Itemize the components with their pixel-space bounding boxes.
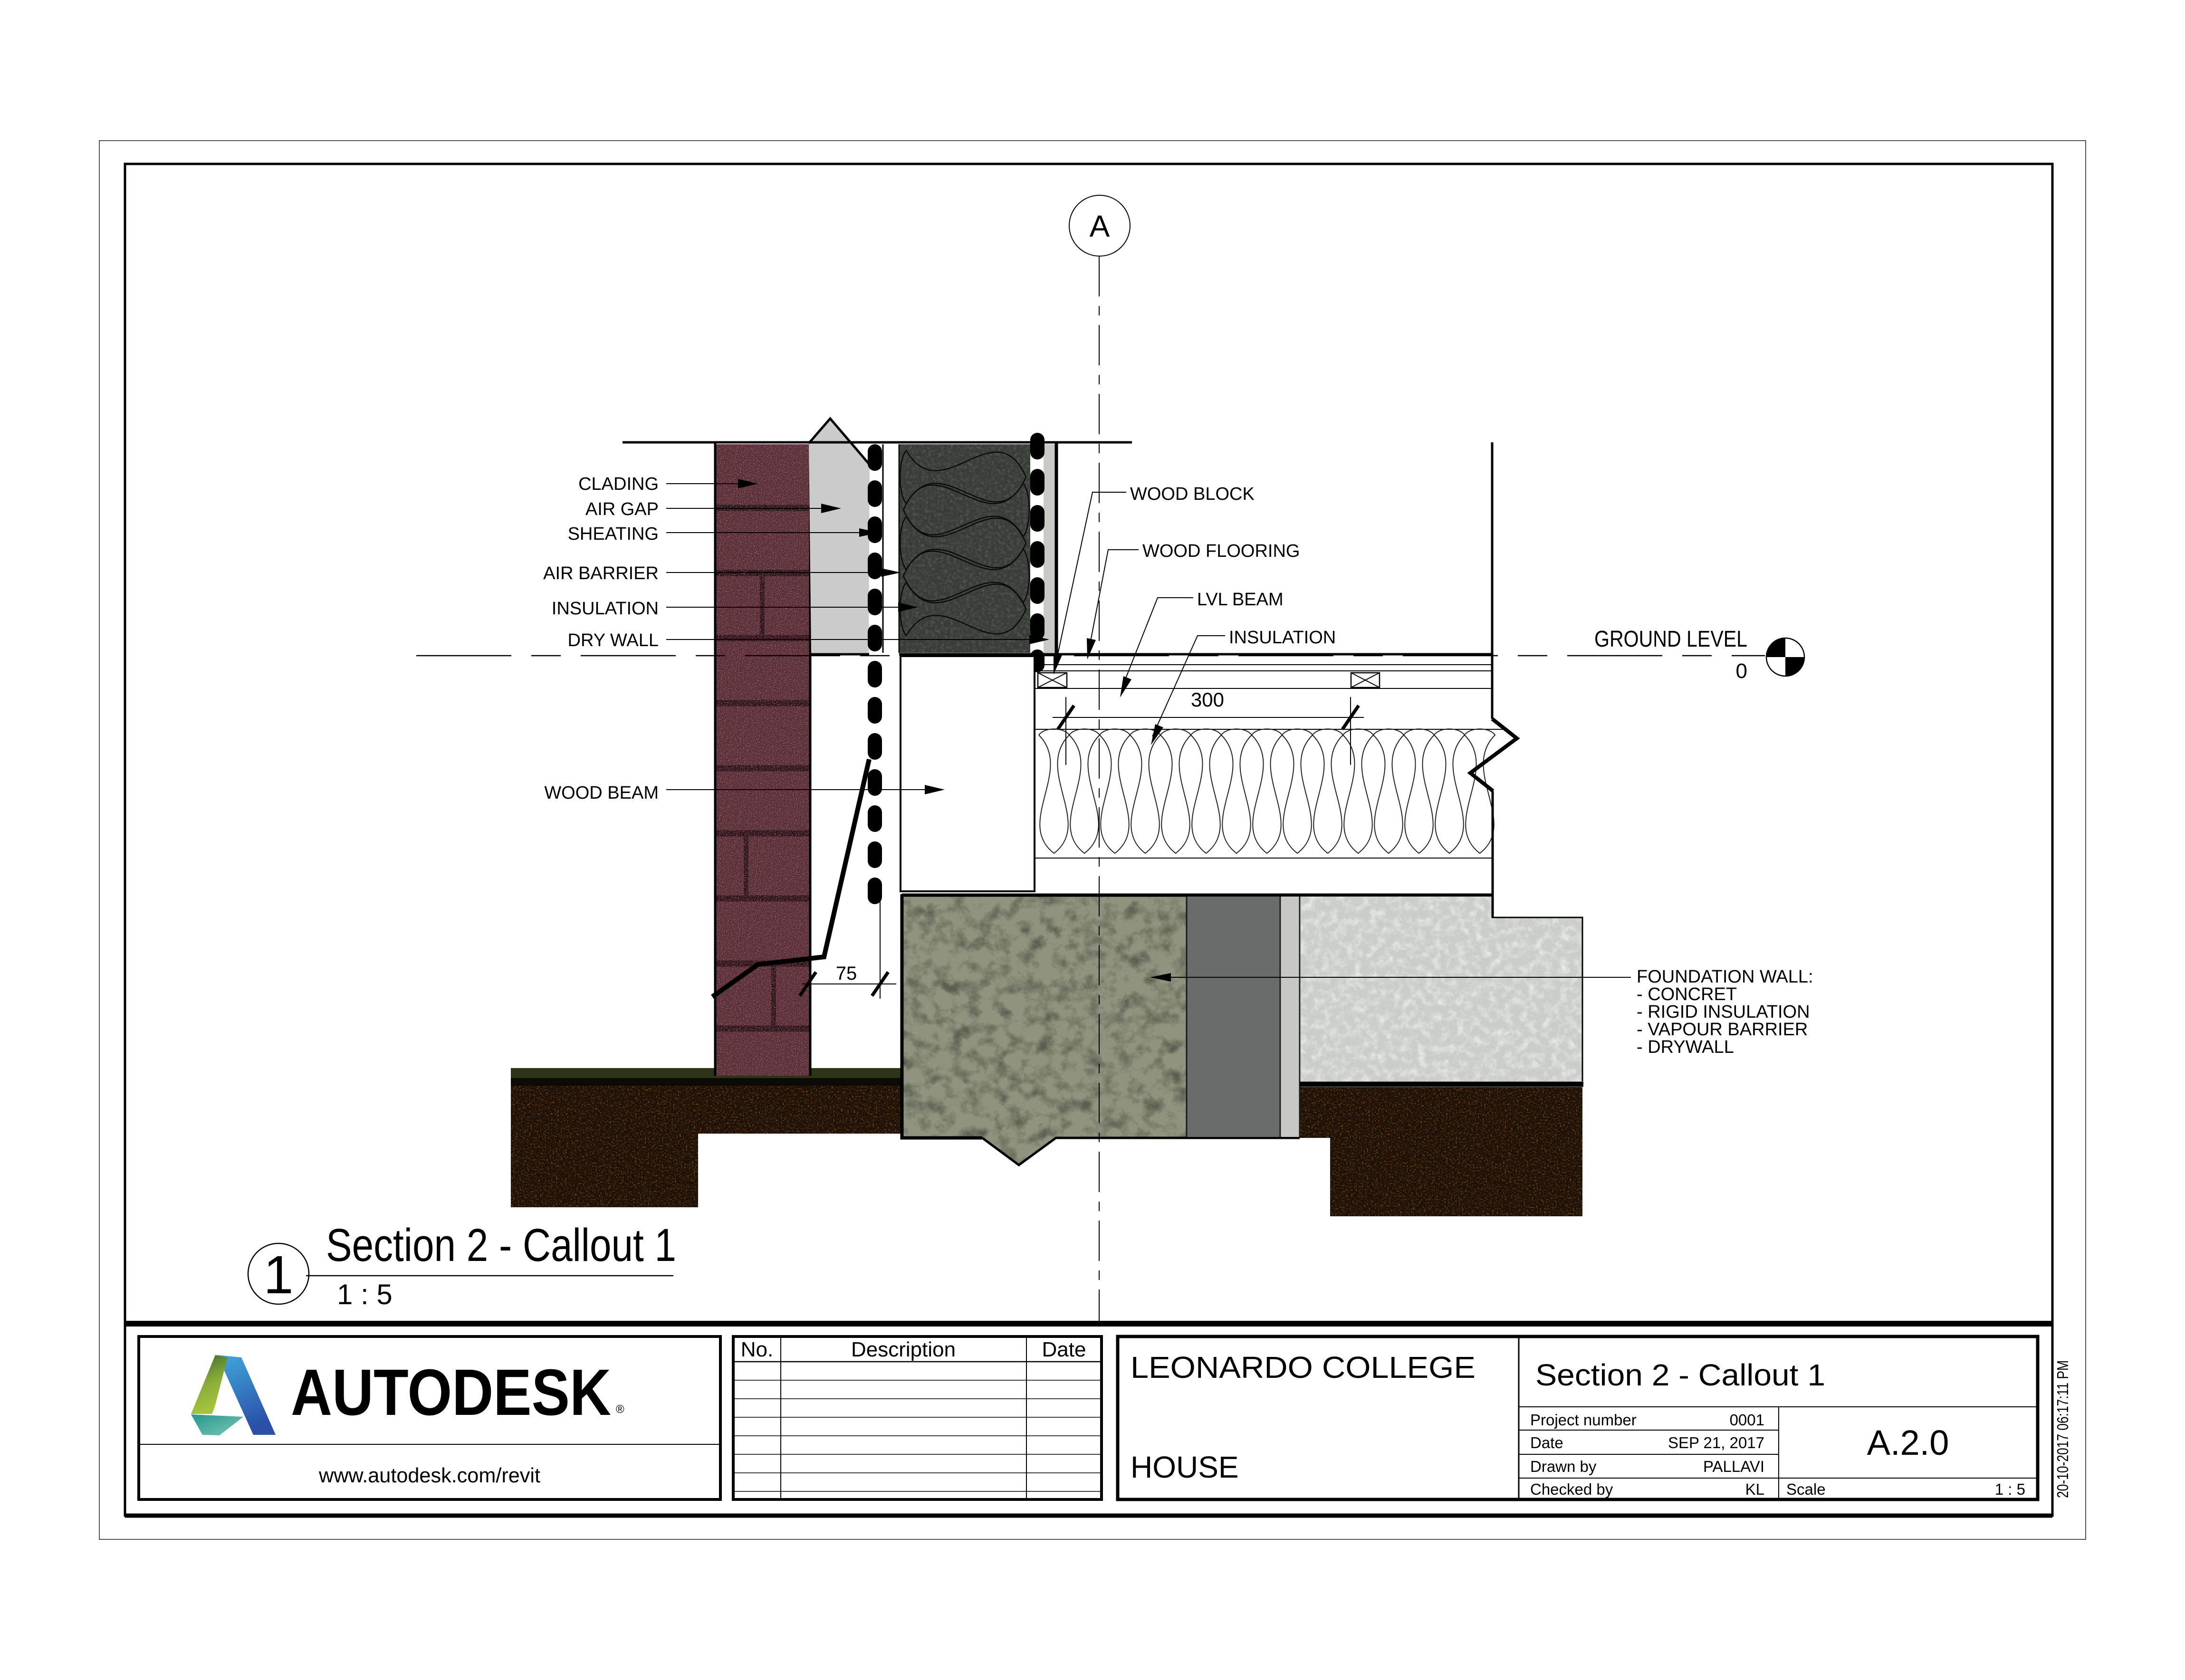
svg-text:- RIGID INSULATION: - RIGID INSULATION bbox=[1637, 1002, 1810, 1022]
svg-text:®: ® bbox=[616, 1403, 624, 1416]
svg-text:A: A bbox=[1090, 209, 1110, 243]
svg-text:1: 1 bbox=[264, 1245, 294, 1305]
svg-text:Description: Description bbox=[851, 1338, 956, 1361]
svg-text:WOOD BLOCK: WOOD BLOCK bbox=[1130, 484, 1255, 504]
svg-text:0: 0 bbox=[1736, 659, 1747, 683]
svg-text:HOUSE: HOUSE bbox=[1131, 1450, 1239, 1484]
svg-text:No.: No. bbox=[741, 1338, 773, 1361]
svg-text:Checked by: Checked by bbox=[1530, 1480, 1613, 1498]
svg-text:Section 2 - Callout 1: Section 2 - Callout 1 bbox=[1535, 1358, 1825, 1392]
svg-text:Date: Date bbox=[1042, 1338, 1086, 1361]
svg-text:WOOD FLOORING: WOOD FLOORING bbox=[1142, 541, 1300, 561]
svg-text:AUTODESK: AUTODESK bbox=[291, 1356, 611, 1429]
svg-text:Date: Date bbox=[1530, 1434, 1563, 1451]
svg-text:Section 2 - Callout 1: Section 2 - Callout 1 bbox=[326, 1219, 676, 1271]
svg-text:WOOD BEAM: WOOD BEAM bbox=[544, 783, 659, 803]
svg-text:SEP 21, 2017: SEP 21, 2017 bbox=[1668, 1434, 1764, 1451]
svg-text:A.2.0: A.2.0 bbox=[1867, 1423, 1949, 1462]
svg-text:CLADING: CLADING bbox=[578, 474, 659, 494]
svg-text:www.autodesk.com/revit: www.autodesk.com/revit bbox=[318, 1464, 540, 1487]
svg-text:INSULATION: INSULATION bbox=[552, 599, 659, 619]
svg-text:- DRYWALL: - DRYWALL bbox=[1637, 1037, 1734, 1057]
svg-text:75: 75 bbox=[836, 963, 857, 984]
svg-text:PALLAVI: PALLAVI bbox=[1703, 1458, 1764, 1475]
svg-text:SHEATING: SHEATING bbox=[568, 524, 659, 544]
svg-text:Project number: Project number bbox=[1530, 1411, 1637, 1429]
svg-text:300: 300 bbox=[1191, 688, 1224, 711]
svg-text:LVL BEAM: LVL BEAM bbox=[1197, 590, 1284, 610]
svg-text:0001: 0001 bbox=[1730, 1411, 1764, 1429]
svg-text:AIR GAP: AIR GAP bbox=[585, 499, 659, 519]
svg-text:KL: KL bbox=[1745, 1480, 1764, 1498]
svg-text:- VAPOUR BARRIER: - VAPOUR BARRIER bbox=[1637, 1020, 1808, 1040]
svg-text:DRY WALL: DRY WALL bbox=[568, 630, 659, 650]
svg-text:Drawn by: Drawn by bbox=[1530, 1458, 1597, 1475]
svg-text:GROUND LEVEL: GROUND LEVEL bbox=[1594, 627, 1747, 652]
svg-text:20-10-2017 06:17:11 PM: 20-10-2017 06:17:11 PM bbox=[2054, 1360, 2071, 1498]
svg-text:- CONCRET: - CONCRET bbox=[1637, 984, 1737, 1004]
svg-text:FOUNDATION WALL:: FOUNDATION WALL: bbox=[1637, 967, 1813, 987]
svg-text:INSULATION: INSULATION bbox=[1229, 628, 1336, 648]
svg-text:AIR BARRIER: AIR BARRIER bbox=[543, 563, 659, 583]
svg-text:LEONARDO COLLEGE: LEONARDO COLLEGE bbox=[1131, 1350, 1476, 1384]
svg-text:1 : 5: 1 : 5 bbox=[1995, 1480, 2025, 1498]
svg-text:1 : 5: 1 : 5 bbox=[337, 1279, 393, 1310]
svg-text:Scale: Scale bbox=[1786, 1480, 1826, 1498]
